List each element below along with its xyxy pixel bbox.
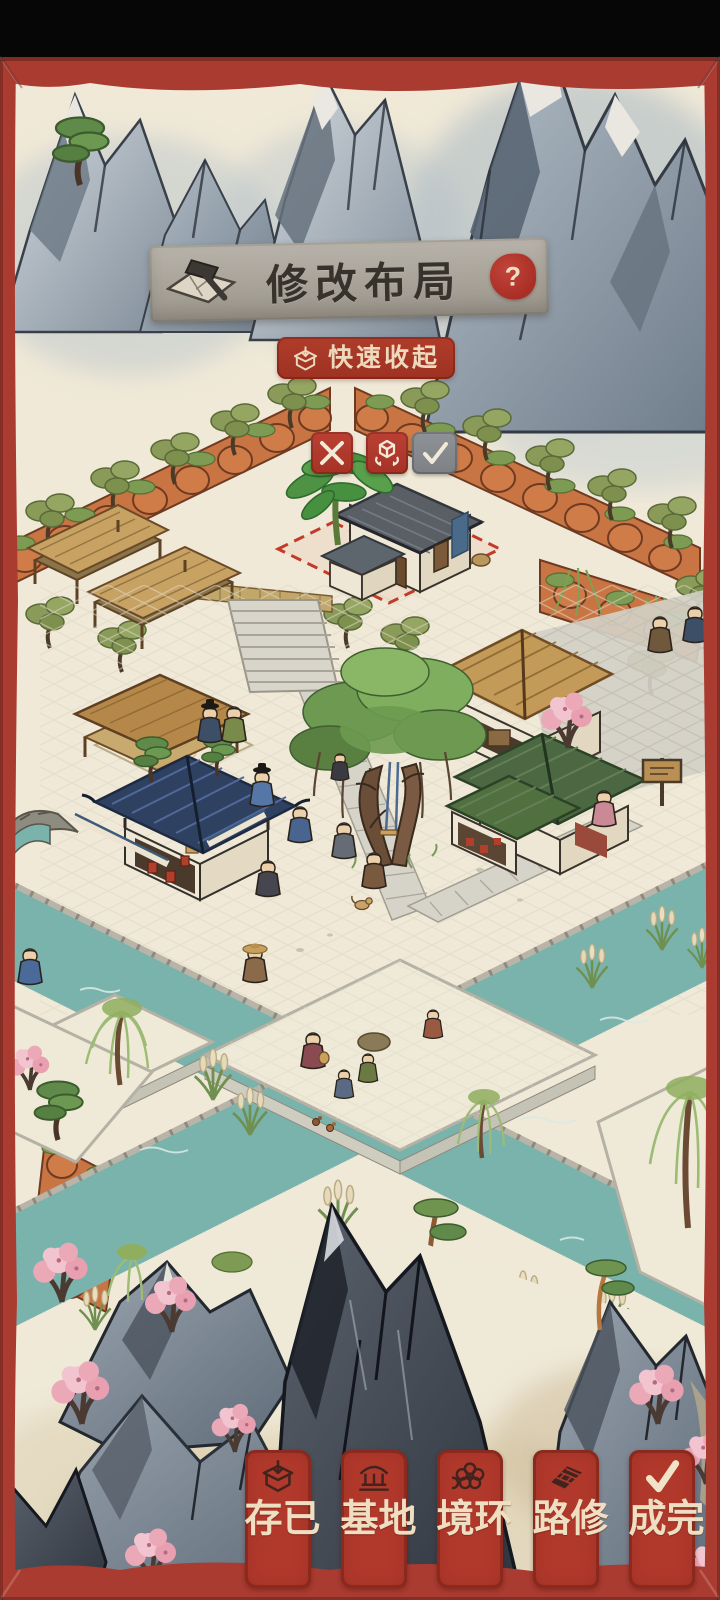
rotate-button[interactable]: [366, 432, 408, 474]
x-icon: [318, 439, 346, 467]
layout-hammer-icon: [165, 255, 238, 310]
foundation-house-icon: [356, 1459, 392, 1493]
storage-box-icon: [260, 1459, 296, 1493]
page-title: 修改布局: [247, 247, 480, 313]
road-icon: [548, 1459, 584, 1493]
environment-label: 环境: [432, 1498, 508, 1588]
cancel-button[interactable]: [311, 432, 353, 474]
check-icon: [420, 438, 450, 468]
saved-buildings-button[interactable]: 已存: [245, 1450, 311, 1588]
quick-collapse-button[interactable]: 快速收起: [277, 337, 455, 379]
mode-title-banner: 修改布局 ?: [149, 238, 549, 322]
scene-illustration: [0, 0, 720, 1600]
build-road-button[interactable]: 修路: [533, 1450, 599, 1588]
storage-box-icon: [292, 345, 319, 372]
quick-collapse-label: 快速收起: [328, 346, 440, 371]
complete-button[interactable]: 完成: [629, 1450, 695, 1588]
foundation-label: 地基: [336, 1498, 412, 1588]
saved-label: 已存: [240, 1498, 316, 1588]
complete-road-label: 修路: [528, 1498, 604, 1588]
complete-label: 完成: [624, 1498, 700, 1588]
rotate-cube-icon: [371, 437, 403, 469]
hay-pile: [358, 1033, 390, 1051]
help-button[interactable]: ?: [489, 253, 536, 300]
confirm-button[interactable]: [412, 432, 457, 474]
environment-button[interactable]: 环境: [437, 1450, 503, 1588]
check-icon: [643, 1459, 681, 1493]
help-label: ?: [504, 261, 521, 292]
blossom-icon: [452, 1459, 488, 1493]
game-screen: 修改布局 ? 快速收起 已存 地基 环境: [0, 0, 720, 1600]
foundation-button[interactable]: 地基: [341, 1450, 407, 1588]
